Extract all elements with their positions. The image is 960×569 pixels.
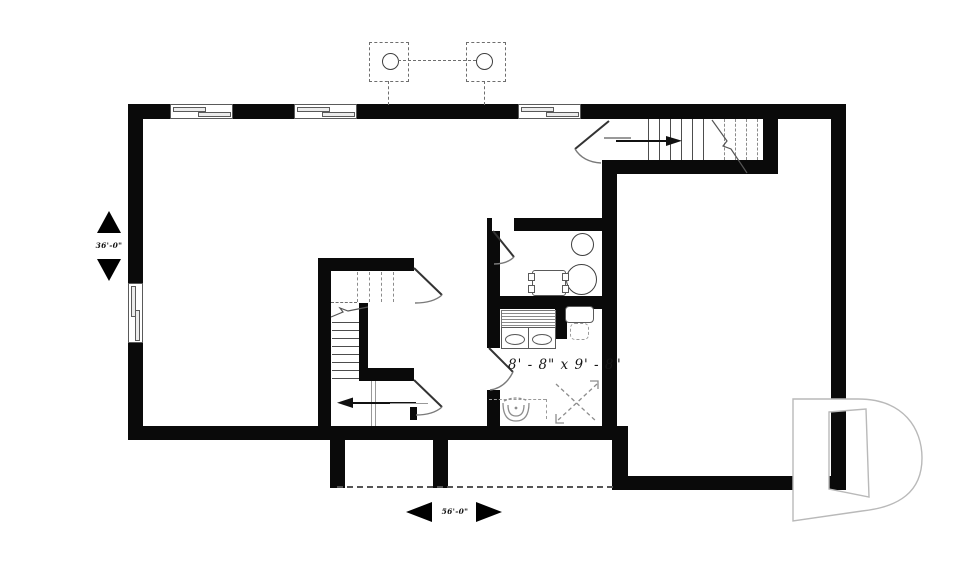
dimension-arrow-up-icon: [97, 211, 121, 233]
shower-roughin-icon: [556, 381, 598, 423]
wall-stair-guard: [359, 303, 368, 381]
tread-line: [332, 362, 359, 363]
tread-line-above: [357, 272, 358, 302]
tread-line: [332, 338, 359, 339]
window-pane: [546, 112, 579, 117]
window-pane: [198, 112, 231, 117]
tread-line-above: [735, 119, 736, 160]
furnace-icon: [532, 270, 566, 296]
floor-plan-canvas: 36'-0" 56'-0" 8' - 8" x 9' - 8": [0, 0, 960, 569]
tread-line: [332, 346, 359, 347]
wall-exterior-right: [831, 104, 846, 490]
door-gap-utility: [492, 218, 514, 231]
dimension-arrow-right-icon: [476, 502, 502, 522]
sink-oval: [532, 334, 552, 345]
tread-line: [670, 119, 671, 160]
stair-arrow-tail: [604, 137, 631, 139]
water-heater-icon: [571, 233, 594, 256]
door-gap-bathroom: [487, 348, 500, 390]
roughin-dashed-line: [546, 399, 547, 419]
room-size-label: 8' - 8" x 9' - 8": [508, 357, 622, 373]
window-icon-top-3: [518, 104, 581, 119]
tread-line-above: [757, 119, 758, 160]
stair-arrow-line-up: [616, 140, 668, 142]
wall-exterior-bottom-left: [128, 426, 628, 440]
post-drop-dashed-line-1: [388, 81, 389, 105]
wall-utility-left: [487, 218, 500, 426]
tread-line: [332, 378, 359, 379]
tread-line: [332, 322, 359, 323]
wall-stair-enclosure-right: [763, 119, 778, 160]
post-circle-icon-2: [476, 53, 493, 70]
furnace-tab: [562, 273, 569, 281]
wall-deck-stub-left: [330, 440, 345, 488]
window-pane: [322, 112, 355, 117]
stair-arrow-head-icon: [666, 136, 682, 146]
wall-exterior-left: [128, 104, 143, 440]
window-pane: [135, 310, 140, 341]
dimension-arrow-left-icon: [406, 502, 432, 522]
window-icon-top-2: [294, 104, 357, 119]
toilet-icon: [503, 398, 529, 421]
wall-midstair-middle: [368, 368, 414, 381]
sink-oval: [505, 334, 525, 345]
furnace-tab: [528, 285, 535, 293]
tread-line: [703, 119, 704, 160]
stair-arrow-tail: [390, 403, 428, 404]
wall-exterior-top: [128, 104, 846, 119]
tread-line-above: [724, 119, 725, 160]
wall-midstair-left: [318, 258, 331, 440]
beam-dashed-line: [398, 60, 476, 61]
furnace-tab: [562, 285, 569, 293]
wall-door-stub: [410, 407, 417, 420]
door-swing-icon-stair-entry: [575, 121, 609, 163]
chair-icon: [570, 323, 589, 340]
water-tank-icon: [566, 264, 597, 295]
dimension-arrow-down-icon: [97, 259, 121, 281]
landing-dashed-line: [331, 302, 357, 303]
furnace-tab: [528, 273, 535, 281]
tread-line: [332, 370, 359, 371]
tread-line-above: [746, 119, 747, 160]
desk-icon: [565, 306, 594, 323]
deck-dashed-line: [337, 486, 613, 488]
door-swing-icon-midstair-lower: [414, 380, 442, 415]
tread-line-above: [369, 272, 370, 302]
wall-stair-enclosure-bottom: [602, 160, 778, 174]
dimension-text-left: 36'-0": [88, 241, 130, 250]
roughin-dashed-line: [489, 399, 546, 400]
tread-line: [692, 119, 693, 160]
vanity-counter-hatch: [501, 310, 556, 328]
post-circle-icon-1: [382, 53, 399, 70]
wall-deck-stub-right: [433, 440, 448, 488]
post-drop-dashed-line-2: [484, 81, 485, 105]
tread-line: [332, 354, 359, 355]
tread-line: [681, 119, 682, 160]
tread-line-above: [381, 272, 382, 302]
wall-exterior-bottom-right: [612, 476, 846, 490]
door-swing-icon-midstair-upper: [414, 268, 442, 303]
tread-line-above: [393, 272, 394, 302]
dimension-text-bottom: 56'-0": [434, 507, 476, 516]
tread-line: [332, 330, 359, 331]
window-icon-top-1: [170, 104, 233, 119]
wall-utility-middle: [487, 296, 617, 309]
wall-midstair-top: [318, 258, 414, 271]
window-icon-left: [128, 283, 143, 343]
